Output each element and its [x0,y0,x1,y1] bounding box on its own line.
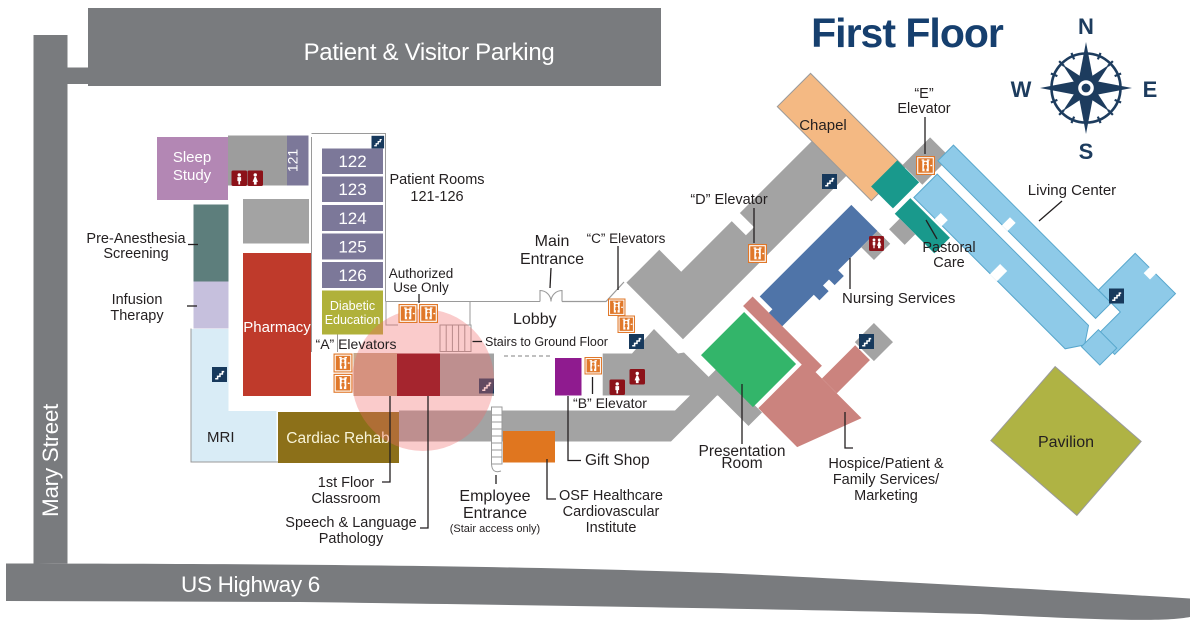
svg-text:First Floor: First Floor [811,10,1004,56]
svg-text:Elevator: Elevator [897,101,950,117]
svg-text:Marketing: Marketing [854,488,918,504]
svg-text:Mary Street: Mary Street [38,403,63,517]
svg-text:Entrance: Entrance [463,505,527,522]
svg-text:Classroom: Classroom [311,491,380,507]
svg-text:W: W [1011,77,1032,102]
svg-text:Lobby: Lobby [513,311,557,328]
svg-text:121-126: 121-126 [410,189,463,205]
svg-text:Education: Education [325,313,381,327]
svg-text:Patient Rooms: Patient Rooms [389,172,484,188]
svg-text:“B” Elevator: “B” Elevator [573,395,647,411]
svg-text:Authorized: Authorized [389,266,454,281]
svg-text:“C” Elevators: “C” Elevators [587,231,666,246]
svg-text:Entrance: Entrance [520,251,584,268]
svg-text:1st Floor: 1st Floor [318,475,375,491]
svg-text:Gift Shop: Gift Shop [585,452,650,469]
svg-text:121: 121 [285,149,301,173]
svg-text:N: N [1078,14,1094,39]
svg-text:US Highway 6: US Highway 6 [181,572,320,597]
svg-text:Room: Room [721,455,762,472]
svg-text:Pre-Anesthesia: Pre-Anesthesia [86,231,186,247]
svg-text:126: 126 [338,266,366,285]
svg-text:“D” Elevator: “D” Elevator [690,192,768,208]
svg-text:122: 122 [338,152,366,171]
svg-text:Speech & Language: Speech & Language [285,515,416,531]
svg-text:Study: Study [173,167,212,184]
svg-text:Care: Care [933,255,964,271]
svg-text:“A” Elevators: “A” Elevators [316,336,397,352]
svg-text:Hospice/Patient &: Hospice/Patient & [828,456,944,472]
svg-text:Chapel: Chapel [799,117,847,134]
svg-text:Use Only: Use Only [393,280,449,295]
svg-text:123: 123 [338,180,366,199]
svg-text:Sleep: Sleep [173,149,211,166]
svg-text:E: E [1143,77,1158,102]
svg-text:“E”: “E” [914,86,934,102]
svg-text:124: 124 [338,209,366,228]
svg-text:Employee: Employee [459,488,530,505]
svg-text:S: S [1079,139,1094,164]
svg-text:125: 125 [338,238,366,257]
svg-text:Pathology: Pathology [319,531,384,547]
svg-text:Therapy: Therapy [110,308,164,324]
svg-text:OSF Healthcare: OSF Healthcare [559,488,663,504]
svg-text:Nursing Services: Nursing Services [842,290,955,307]
svg-text:Pavilion: Pavilion [1038,434,1094,451]
svg-text:Living Center: Living Center [1028,182,1116,199]
svg-text:Pastoral: Pastoral [922,240,975,256]
svg-text:Cardiovascular: Cardiovascular [563,504,660,520]
svg-text:Screening: Screening [103,246,168,262]
svg-text:Patient & Visitor Parking: Patient & Visitor Parking [304,39,555,66]
svg-text:MRI: MRI [207,429,235,446]
svg-text:Main: Main [535,233,570,250]
svg-text:Diabetic: Diabetic [330,299,375,313]
svg-text:Cardiac Rehab: Cardiac Rehab [286,430,389,447]
svg-text:(Stair access only): (Stair access only) [450,523,540,535]
svg-text:Family Services/: Family Services/ [833,472,940,488]
svg-text:Stairs to Ground Floor: Stairs to Ground Floor [485,335,608,349]
svg-text:Institute: Institute [586,520,637,536]
svg-text:Infusion: Infusion [112,292,163,308]
svg-text:Pharmacy: Pharmacy [243,319,311,336]
